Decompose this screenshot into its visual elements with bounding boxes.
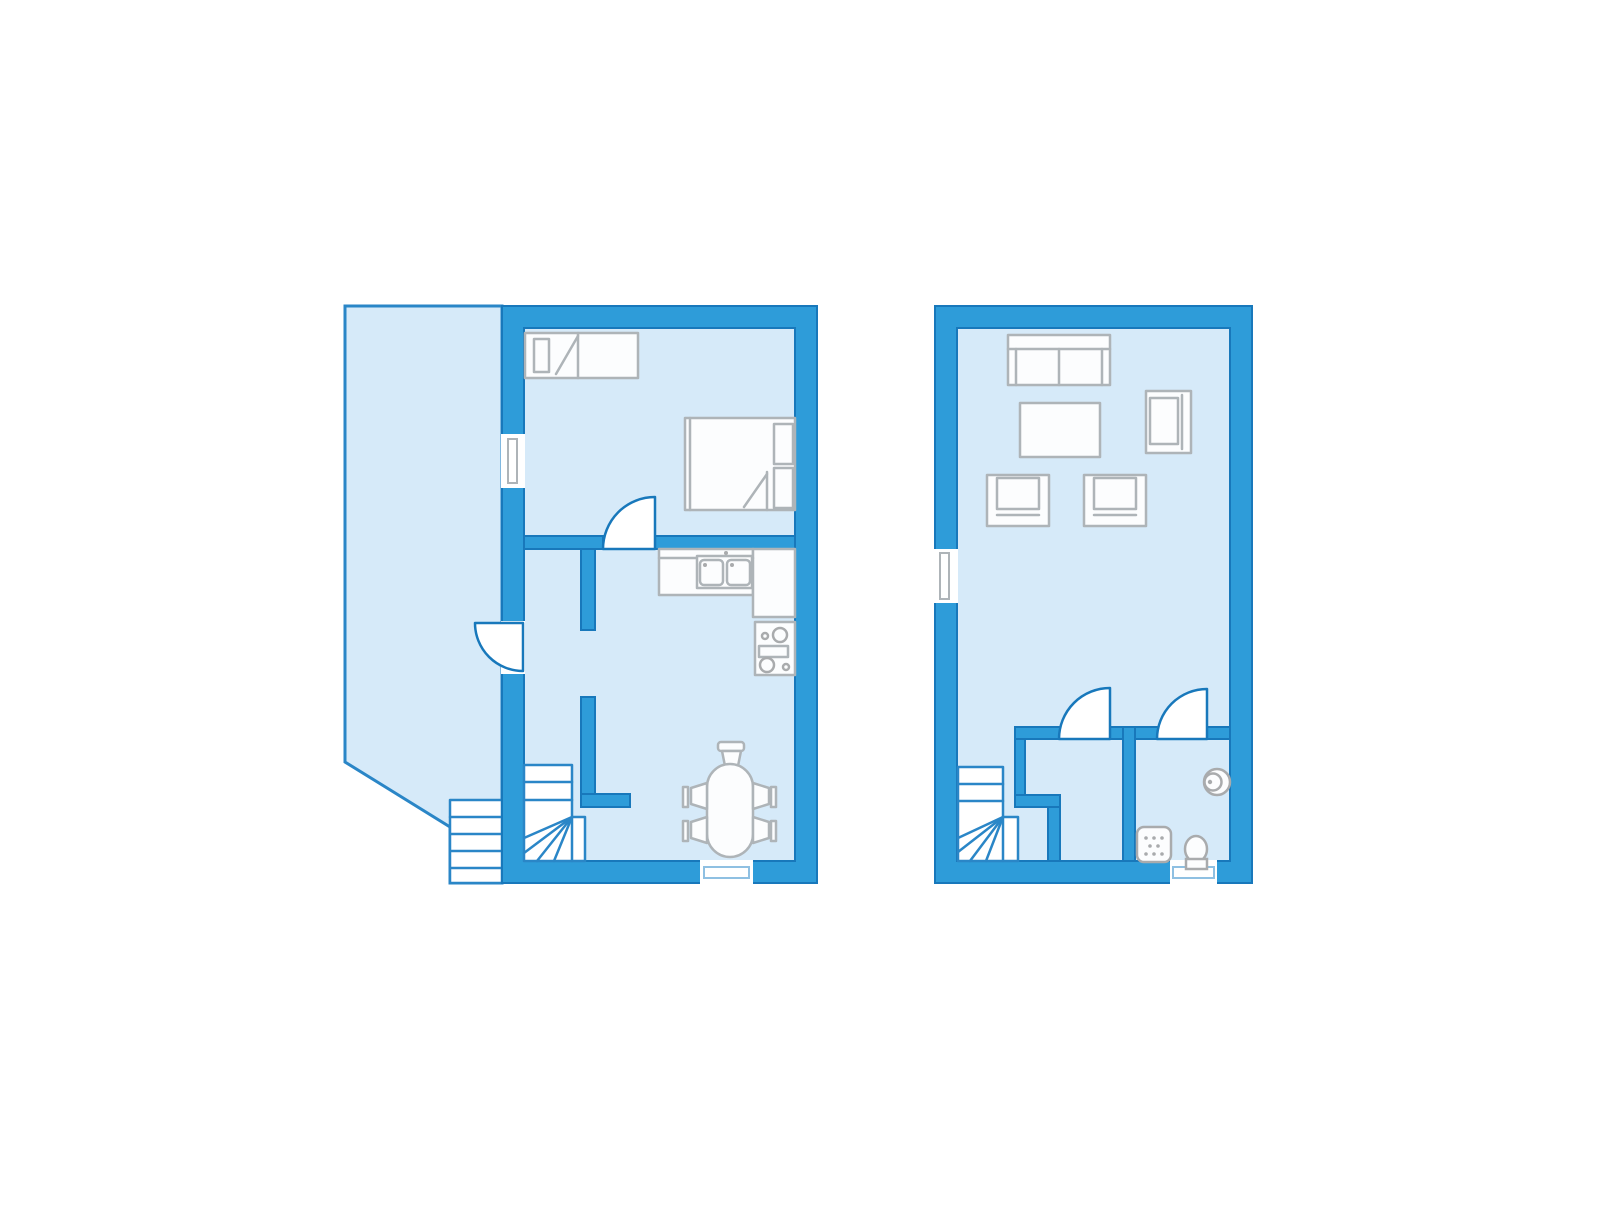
window-icon (501, 434, 525, 488)
washbasin-icon (1204, 769, 1230, 795)
dining-chair-icon (683, 783, 707, 809)
head-chair-icon (718, 742, 744, 751)
coffee-table-icon (1020, 403, 1100, 457)
terrace-floor (345, 306, 502, 883)
dining-chair-icon (753, 817, 776, 843)
armchair-icon (987, 475, 1049, 526)
ground-floor-plan (345, 306, 817, 884)
dining-chair-icon (683, 817, 707, 843)
sofa-icon (1008, 335, 1110, 385)
double-bed-icon (685, 418, 795, 510)
floor-plan-image (0, 0, 1606, 1205)
patio-threshold-icon (700, 860, 753, 884)
exterior-steps-icon (450, 800, 502, 883)
floor-plan-canvas (0, 0, 1606, 1205)
shower-icon (1137, 827, 1171, 862)
armchair-icon (1146, 391, 1191, 453)
toilet-icon (1185, 836, 1207, 869)
dining-chair-icon (753, 783, 776, 809)
window-icon (934, 549, 958, 603)
single-bed-icon (525, 333, 638, 378)
upper-floor-plan (934, 306, 1252, 884)
armchair-icon (1084, 475, 1146, 526)
stove-icon (755, 622, 795, 675)
double-sink-icon (697, 551, 752, 588)
